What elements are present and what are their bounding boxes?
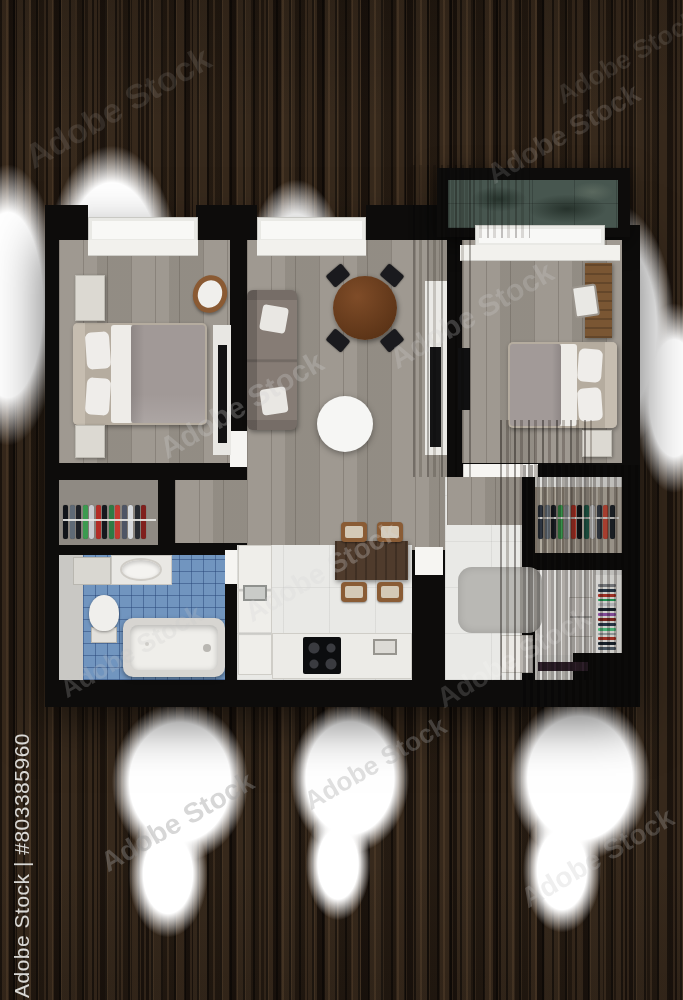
headboard xyxy=(605,342,617,428)
pillow xyxy=(85,331,112,370)
duvet xyxy=(131,325,205,423)
kitchen-chair xyxy=(341,522,367,542)
nightstand xyxy=(75,425,105,458)
closet-1-clothes-rail xyxy=(63,501,156,543)
sofa-pillow xyxy=(259,386,288,415)
window-sill xyxy=(88,240,198,256)
sofa-pillow xyxy=(259,304,289,334)
desk-chair xyxy=(571,283,600,318)
wall-pillar xyxy=(45,205,88,227)
wall-pillar xyxy=(196,205,257,227)
kitchen-sink xyxy=(243,585,267,601)
duvet xyxy=(510,344,561,426)
bathtub xyxy=(123,618,225,677)
stock-photo-canvas: Adobe Stock Adobe Stock Adobe Stock Adob… xyxy=(0,0,683,1000)
double-bed-1 xyxy=(73,323,207,425)
kitchen-chair xyxy=(341,582,367,602)
double-bed-2 xyxy=(508,342,617,428)
floor-plan xyxy=(45,165,640,707)
counter-sink xyxy=(373,639,397,655)
pillow xyxy=(577,348,603,383)
headboard xyxy=(73,323,85,425)
window-sill xyxy=(257,240,366,256)
window-sill xyxy=(460,245,620,261)
round-dining-table xyxy=(333,276,397,340)
kitchen-chair xyxy=(377,522,403,542)
round-rug xyxy=(317,396,373,452)
bed-sheet xyxy=(559,344,577,426)
washbasin xyxy=(120,558,162,581)
bed-sheet xyxy=(111,325,133,423)
tv-icon xyxy=(218,345,227,443)
cooktop xyxy=(303,637,341,674)
nightstand xyxy=(75,275,105,321)
bedroom-1-door xyxy=(230,431,247,467)
wood-streak-overlay xyxy=(445,168,530,238)
hallway-floor xyxy=(175,480,247,543)
toilet xyxy=(89,595,119,631)
pillow xyxy=(577,387,603,422)
bathroom-cabinet xyxy=(73,557,111,585)
sofa xyxy=(247,290,297,430)
wood-streak-overlay xyxy=(523,465,640,707)
kitchen-chair xyxy=(377,582,403,602)
watermark-side-label: Adobe Stock | #803385960 xyxy=(10,698,34,998)
kitchen-table xyxy=(335,541,408,580)
pillow xyxy=(85,377,112,416)
bathroom-1-door xyxy=(225,550,237,584)
kitchen-tall-unit xyxy=(238,545,272,675)
bathroom-2-door xyxy=(415,547,443,575)
